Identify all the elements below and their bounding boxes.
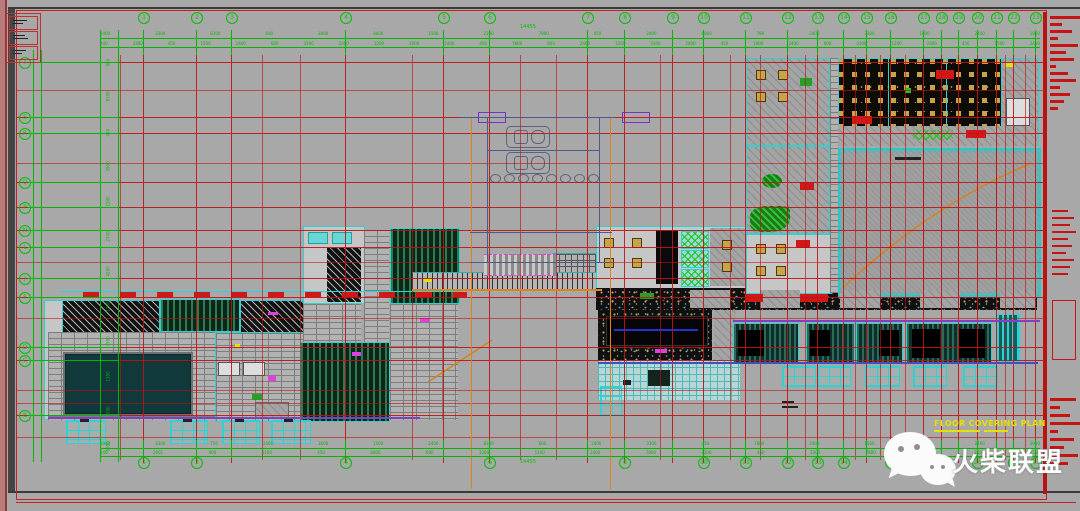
grid-column-line-minor xyxy=(760,55,761,460)
top-dimension-numbers-row2: 2403300450150024006003300240012003000240… xyxy=(100,41,1040,46)
dimension-number: 2400 xyxy=(100,31,110,36)
title-note-bar xyxy=(1050,93,1070,96)
grid-bubble-left: P xyxy=(19,202,31,214)
grid-column-line-minor xyxy=(262,55,263,460)
grid-column-line-minor xyxy=(660,55,661,460)
top-dimension-numbers-row1: 2400330081006003000840015002100780045024… xyxy=(100,31,1040,36)
dimension-number: 1500 xyxy=(428,31,438,36)
ramp-edge-west xyxy=(471,117,472,489)
dimension-number: 780 xyxy=(757,31,765,36)
grid-bubble-bottom: 10 xyxy=(698,457,710,469)
title-note-bar xyxy=(1050,16,1080,19)
grid-bubble-top: 9 xyxy=(667,12,679,24)
grid-bubble-left: R xyxy=(19,128,31,140)
dimension-number: 2400 xyxy=(263,441,273,446)
dimension-number: 7500 xyxy=(106,339,111,347)
dimension-number: 900 xyxy=(209,450,217,455)
title-note-box xyxy=(1052,300,1076,360)
grid-bubble-bottom: 4 xyxy=(340,457,352,469)
grid-row-line xyxy=(17,133,1043,134)
grid-bubble-bottom: 11 xyxy=(740,457,752,469)
dimension-number: 3600 xyxy=(318,441,328,446)
dimension-number: 1500 xyxy=(200,41,210,46)
title-note-bar xyxy=(1052,245,1072,247)
dimension-number: 2700 xyxy=(106,234,111,242)
dimension-number: 2400 xyxy=(591,441,601,446)
canopy-frame-west xyxy=(487,117,488,263)
grid-bubble-left: B xyxy=(19,410,31,422)
title-note-bar xyxy=(1050,58,1074,61)
dimension-number: 2400 xyxy=(339,41,349,46)
dimension-number: 600 xyxy=(426,450,434,455)
watermark-text: 火柴联盟 xyxy=(952,442,1064,479)
grid-column-line-minor xyxy=(300,55,301,460)
dimension-number: 1200 xyxy=(701,450,711,455)
grid-bubble-top: 5 xyxy=(438,12,450,24)
dimension-number: 9000 xyxy=(701,31,711,36)
grid-bubble-top: 17 xyxy=(918,12,930,24)
stamp-box xyxy=(9,46,38,60)
canopy-frame-bottom xyxy=(470,232,612,233)
canopy-frame-east xyxy=(599,117,600,263)
title-note-bar xyxy=(1052,266,1070,268)
dimension-number: 3300 xyxy=(650,41,660,46)
grid-bubble-top: 18 xyxy=(936,12,948,24)
grid-bubble-bottom: 14 xyxy=(838,457,850,469)
dimension-number: 3900 xyxy=(106,164,111,172)
grid-column-line-minor xyxy=(1025,55,1026,460)
grid-bubble-bottom: 6 xyxy=(484,457,496,469)
title-note-bar xyxy=(1052,210,1068,212)
dimension-number: 4200 xyxy=(106,269,111,277)
wing-base-line xyxy=(598,362,1038,364)
grid-bubble-left: L xyxy=(19,242,31,254)
dimension-number: 2400 xyxy=(428,441,438,446)
top-dim-line-2 xyxy=(100,47,1040,48)
canopy-frame-top xyxy=(460,117,615,118)
dimension-number: 750 xyxy=(210,441,218,446)
dimension-number: 1500 xyxy=(615,41,625,46)
dimension-number: 1200 xyxy=(374,41,384,46)
dimension-number: 1050 xyxy=(106,409,111,417)
dimension-number: 1350 xyxy=(106,374,111,382)
grid-bubble-left: D xyxy=(19,342,31,354)
title-note-bar xyxy=(1050,107,1058,110)
dimension-number: 3300 xyxy=(133,41,143,46)
stamp-box xyxy=(9,31,38,45)
left-dim-line-4 xyxy=(118,30,119,462)
grid-row-line-minor xyxy=(17,90,1043,91)
title-note-bar xyxy=(1050,30,1072,33)
grid-bubble-left: N xyxy=(19,225,31,237)
grid-bubble-top: 22 xyxy=(1008,12,1020,24)
grid-bubble-top: 1 xyxy=(138,12,150,24)
dimension-number: 5100 xyxy=(535,450,545,455)
grid-bubble-top: 14 xyxy=(838,12,850,24)
grid-column-line-minor xyxy=(855,55,856,460)
grid-column-line-minor xyxy=(556,55,557,460)
grid-row-line-minor xyxy=(17,163,1043,164)
title-note-bar xyxy=(1052,217,1074,219)
title-note-bar xyxy=(1052,231,1076,233)
dimension-number: 8100 xyxy=(210,31,220,36)
title-note-bar xyxy=(1050,422,1080,425)
dimension-number: 1950 xyxy=(1030,31,1040,36)
dimension-number: 450 xyxy=(701,441,709,446)
grid-bubble-top: 10 xyxy=(698,12,710,24)
dimension-number: 2400 xyxy=(580,41,590,46)
grid-row-line-minor xyxy=(17,318,1043,319)
grid-bubble-top: 19 xyxy=(953,12,965,24)
dimension-number: 7800 xyxy=(539,31,549,36)
dimension-number: 600 xyxy=(265,31,273,36)
title-note-bar xyxy=(1052,238,1068,240)
grid-row-line xyxy=(17,247,1043,248)
grid-bubble-left: C xyxy=(19,355,31,367)
dimension-number: 600 xyxy=(271,41,279,46)
dimension-number: 450 xyxy=(168,41,176,46)
dimension-number: 600 xyxy=(547,41,555,46)
grid-bubble-top: 16 xyxy=(885,12,897,24)
dimension-number: 2400 xyxy=(590,450,600,455)
stamp-box xyxy=(9,16,38,30)
top-total-dim: 14455 xyxy=(520,24,536,30)
grid-row-line-minor xyxy=(17,403,1043,404)
dimension-number: 450 xyxy=(757,450,765,455)
grid-bubble-top: 8 xyxy=(619,12,631,24)
grid-row-line xyxy=(17,207,1043,208)
title-note-bar xyxy=(1050,406,1060,409)
dimension-number: 8100 xyxy=(106,94,111,102)
dimension-number: 8400 xyxy=(373,31,383,36)
dimension-number: 450 xyxy=(962,41,970,46)
top-dim-line-1 xyxy=(100,38,1040,39)
dimension-number: 1800 xyxy=(753,41,763,46)
dimension-number: 2400 xyxy=(236,41,246,46)
grid-bubble-top: 3 xyxy=(226,12,238,24)
canopy-frame-bottom2 xyxy=(470,262,612,263)
dimension-number: 600 xyxy=(824,41,832,46)
dimension-number: 450 xyxy=(594,31,602,36)
revision-stamp-group xyxy=(6,13,41,63)
dimension-number: 450 xyxy=(721,41,729,46)
dimension-number: 240 xyxy=(100,41,108,46)
title-note-bar xyxy=(1052,252,1066,254)
title-note-bar xyxy=(1050,44,1078,47)
grid-column-line-minor xyxy=(412,55,413,460)
wing-edge-line xyxy=(733,320,1040,322)
walkway-orange-line xyxy=(412,289,602,291)
dimension-number: 3300 xyxy=(864,31,874,36)
dimension-number: 8400 xyxy=(370,450,380,455)
title-note-bar xyxy=(1050,100,1064,103)
dimension-number: 2400 xyxy=(1030,41,1040,46)
grid-bubble-bottom: 2 xyxy=(191,457,203,469)
title-note-bar xyxy=(1050,23,1062,26)
dimension-number: 8100 xyxy=(483,441,493,446)
grid-row-line xyxy=(17,360,1043,361)
watermark: 火柴联盟 xyxy=(880,430,1080,490)
grid-bubble-left: F xyxy=(19,292,31,304)
grid-bubble-top: 2 xyxy=(191,12,203,24)
title-note-bar xyxy=(1050,72,1068,75)
grid-bubble-top: 21 xyxy=(991,12,1003,24)
grid-bubble-top: 11 xyxy=(740,12,752,24)
left-dim-line-2 xyxy=(41,50,42,462)
dimension-number: 1500 xyxy=(373,441,383,446)
dimension-number: 900 xyxy=(106,59,111,67)
dimension-number: 7800 xyxy=(512,41,522,46)
grid-bubble-bottom: 12 xyxy=(782,457,794,469)
left-dim-line-1 xyxy=(33,50,34,462)
canopy-frame-mid xyxy=(487,150,600,151)
grid-column-line-minor xyxy=(730,55,731,460)
dimension-number: 2400 xyxy=(646,31,656,36)
grid-row-line xyxy=(17,297,1043,298)
grid-bubble-top: 23 xyxy=(1030,12,1042,24)
grid-row-line xyxy=(17,182,1043,183)
title-note-bar xyxy=(1050,65,1056,68)
dimension-number: 3300 xyxy=(810,450,820,455)
grid-bubble-top: 6 xyxy=(484,12,496,24)
dimension-number: 5100 xyxy=(262,450,272,455)
grid-bubble-left: S xyxy=(19,112,31,124)
title-note-bar xyxy=(1052,273,1068,275)
dimension-number: 3300 xyxy=(646,441,656,446)
grid-row-line xyxy=(17,347,1043,348)
grid-row-line xyxy=(17,62,1043,63)
wechat-icon xyxy=(880,430,952,486)
grid-bubble-top: 4 xyxy=(340,12,352,24)
dimension-number: 7800 xyxy=(646,450,656,455)
grid-column-line-minor xyxy=(1005,55,1006,460)
grid-row-line-minor xyxy=(17,390,1043,391)
grid-column-line-minor xyxy=(905,55,906,460)
dimension-number: 2400 xyxy=(685,41,695,46)
dimension-number: 600 xyxy=(539,441,547,446)
grid-row-line xyxy=(17,278,1043,279)
grid-row-line xyxy=(17,415,1043,416)
grid-bubble-top: 13 xyxy=(812,12,824,24)
cad-floor-plan-sheet: 14455 14455 2400330081006003000840015002… xyxy=(0,0,1080,511)
left-dimension-numbers: 9008100450390015002700420012007500135010… xyxy=(104,60,112,450)
grid-column-line-minor xyxy=(805,55,806,460)
grid-bubble-top: 12 xyxy=(782,12,794,24)
dimension-number: 2400 xyxy=(809,31,819,36)
dimension-number: 2400 xyxy=(788,41,798,46)
title-note-bar xyxy=(1050,51,1066,54)
dimension-number: 2400 xyxy=(927,41,937,46)
title-note-bar xyxy=(1050,37,1058,40)
grid-bubble-top: 20 xyxy=(972,12,984,24)
title-note-bar xyxy=(1050,86,1060,89)
dimension-number: 1200 xyxy=(106,304,111,312)
dimension-number: 1200 xyxy=(891,41,901,46)
dimension-number: 450 xyxy=(106,129,111,137)
dimension-number: 1500 xyxy=(864,441,874,446)
grid-bubble-top: 7 xyxy=(582,12,594,24)
title-note-bar xyxy=(1052,224,1070,226)
dimension-number: 3300 xyxy=(155,441,165,446)
grid-bubble-left: Q xyxy=(19,177,31,189)
title-note-bar xyxy=(1050,398,1076,401)
grid-row-line xyxy=(17,230,1043,231)
plan-title: FLOOR COVERING PLAN xyxy=(934,419,1046,428)
dimension-number: 2400 xyxy=(444,41,454,46)
grid-bubble-bottom: 13 xyxy=(812,457,824,469)
left-dim-line-3 xyxy=(100,30,101,462)
dimension-number: 7800 xyxy=(754,441,764,446)
grid-column-line-minor xyxy=(120,55,121,460)
grid-bubble-left: J xyxy=(19,273,31,285)
dimension-number: 5550 xyxy=(106,444,111,452)
dimension-number: 2400 xyxy=(975,31,985,36)
grid-bubble-top: 15 xyxy=(861,12,873,24)
dimension-number: 1500 xyxy=(106,199,111,207)
dimension-number: 1500 xyxy=(995,41,1005,46)
dimension-number: 7800 xyxy=(866,450,876,455)
dimension-number: 3300 xyxy=(303,41,313,46)
bottom-total-dim: 14455 xyxy=(520,459,536,465)
dimension-number: 3000 xyxy=(318,31,328,36)
grid-bubble-bottom: 8 xyxy=(619,457,631,469)
dimension-number: 3300 xyxy=(155,31,165,36)
dimension-number: 3300 xyxy=(479,450,489,455)
title-note-bar xyxy=(1050,414,1070,417)
dimension-number: 450 xyxy=(317,450,325,455)
title-note-bar xyxy=(1052,259,1074,261)
dimension-number: 450 xyxy=(479,41,487,46)
dimension-number: 3300 xyxy=(856,41,866,46)
dimension-number: 3000 xyxy=(409,41,419,46)
dimension-number: 2400 xyxy=(809,441,819,446)
grid-bubble-bottom: 1 xyxy=(138,457,150,469)
dimension-number: 1800 xyxy=(919,31,929,36)
grid-column-line-minor xyxy=(520,55,521,460)
dimension-number: 2001 xyxy=(153,450,163,455)
title-note-bar xyxy=(1050,79,1076,82)
ramp-edge-east xyxy=(610,117,611,489)
dimension-number: 2100 xyxy=(483,31,493,36)
grid-column-line-minor xyxy=(880,55,881,460)
